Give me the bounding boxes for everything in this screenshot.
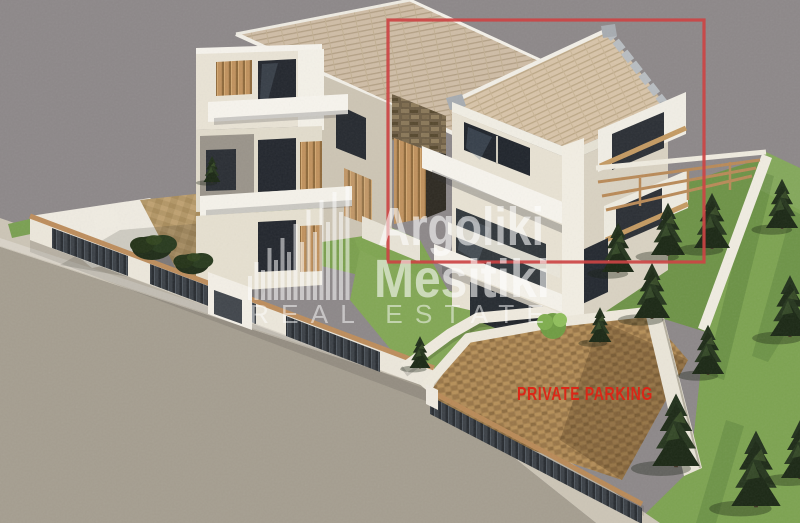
brand-line1: Argoliki [378,197,544,257]
private-parking-label: PRIVATE PARKING [517,384,653,404]
brand-line3: REAL ESTATE [250,299,556,329]
render-scene: Argoliki Mesitiki REAL ESTATE PRIVATE PA… [0,0,800,523]
real-estate-render: Argoliki Mesitiki REAL ESTATE PRIVATE PA… [0,0,800,523]
